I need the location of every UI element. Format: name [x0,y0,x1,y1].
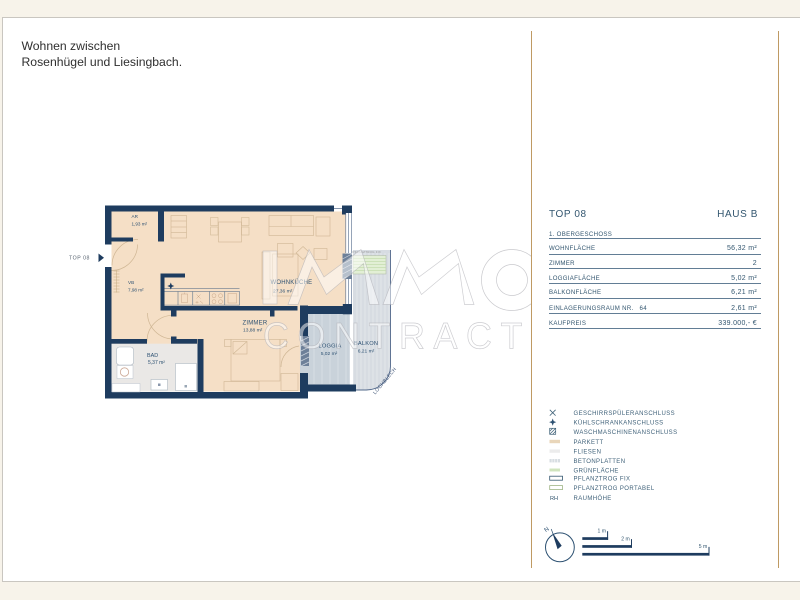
svg-text:1,93 m²: 1,93 m² [132,221,148,226]
svg-text:PFLANZTROG FIX: PFLANZTROG FIX [574,477,631,483]
svg-text:RH: RH [550,496,558,502]
svg-text:GESCHIRRSPÜLERANSCHLUSS: GESCHIRRSPÜLERANSCHLUSS [574,410,676,417]
svg-text:2 m: 2 m [621,536,630,542]
svg-text:5 m: 5 m [699,544,708,550]
svg-text:RAUMHÖHE: RAUMHÖHE [574,495,612,502]
svg-text:PARKETT: PARKETT [574,440,604,446]
svg-text:BAD: BAD [147,353,158,359]
svg-text:PFLANZTROG PORTABEL: PFLANZTROG PORTABEL [574,486,655,492]
svg-text:AR: AR [132,214,139,219]
svg-text:GRÜNFLÄCHE: GRÜNFLÄCHE [574,468,619,475]
svg-text:CONTRACT: CONTRACT [263,315,531,357]
svg-text:7,98 m²: 7,98 m² [128,287,144,292]
svg-text:N: N [544,526,551,533]
svg-text:TOP 08: TOP 08 [69,256,90,262]
svg-text:1 m: 1 m [598,528,607,534]
svg-text:VB: VB [128,280,134,285]
svg-text:KÜHLSCHRANKANSCHLUSS: KÜHLSCHRANKANSCHLUSS [574,419,664,426]
svg-text:5,37 m²: 5,37 m² [148,360,165,366]
svg-text:WASCHMASCHINENANSCHLUSS: WASCHMASCHINENANSCHLUSS [574,430,678,436]
svg-text:BETONPLATTEN: BETONPLATTEN [574,459,626,465]
svg-text:FLIESEN: FLIESEN [574,450,602,456]
